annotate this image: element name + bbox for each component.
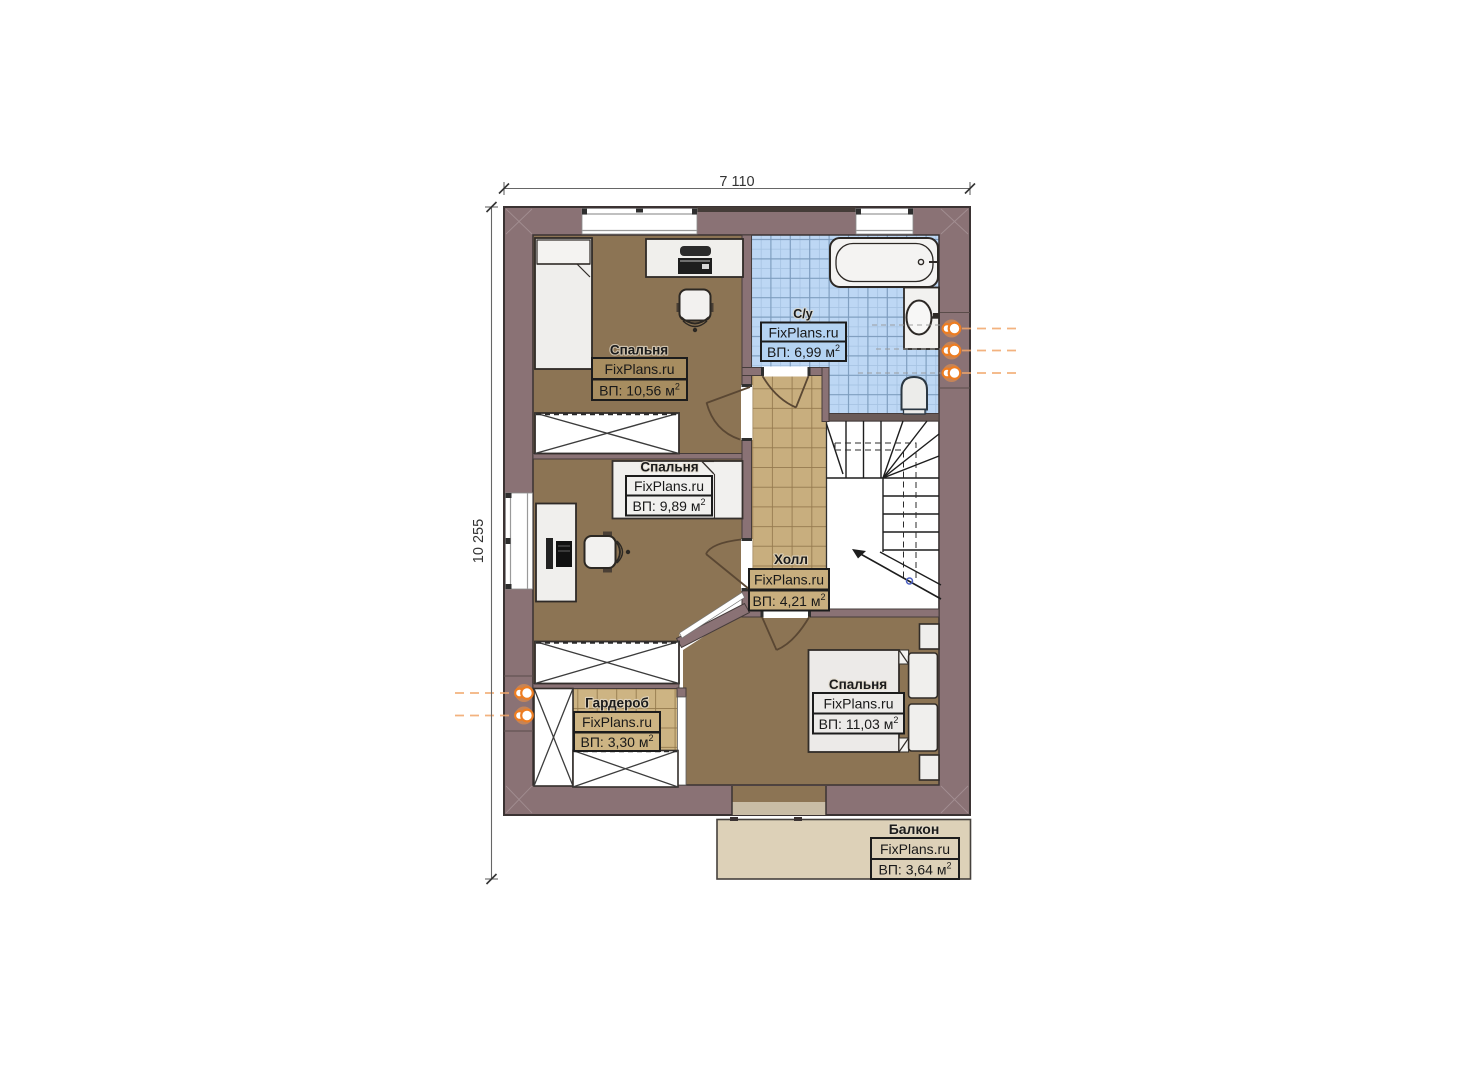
svg-text:С/у: С/у: [793, 307, 813, 321]
svg-text:FixPlans.ru: FixPlans.ru: [604, 361, 674, 377]
svg-text:FixPlans.ru: FixPlans.ru: [880, 841, 950, 857]
svg-text:ВП: 4,21 м2: ВП: 4,21 м2: [753, 592, 826, 609]
svg-text:FixPlans.ru: FixPlans.ru: [823, 696, 893, 712]
svg-text:10 255: 10 255: [471, 519, 487, 563]
svg-text:ВП: 11,03 м2: ВП: 11,03 м2: [819, 715, 899, 732]
svg-text:Балкон: Балкон: [889, 821, 940, 837]
svg-text:ВП: 10,56 м2: ВП: 10,56 м2: [599, 382, 680, 399]
svg-text:Холл: Холл: [774, 552, 808, 567]
svg-text:ВП: 6,99 м2: ВП: 6,99 м2: [767, 343, 840, 360]
svg-text:ВП: 3,64 м2: ВП: 3,64 м2: [879, 860, 952, 877]
svg-text:ВП: 9,89 м2: ВП: 9,89 м2: [633, 497, 706, 514]
svg-text:Спальня: Спальня: [640, 460, 698, 475]
svg-text:FixPlans.ru: FixPlans.ru: [582, 714, 652, 730]
svg-text:Гардероб: Гардероб: [585, 696, 649, 711]
svg-text:ВП: 3,30 м2: ВП: 3,30 м2: [581, 733, 654, 750]
svg-text:FixPlans.ru: FixPlans.ru: [768, 324, 838, 340]
svg-text:Спальня: Спальня: [610, 343, 668, 358]
svg-text:Спальня: Спальня: [829, 677, 887, 692]
svg-text:7 110: 7 110: [719, 174, 754, 190]
svg-text:FixPlans.ru: FixPlans.ru: [754, 572, 824, 588]
svg-text:FixPlans.ru: FixPlans.ru: [634, 478, 704, 494]
